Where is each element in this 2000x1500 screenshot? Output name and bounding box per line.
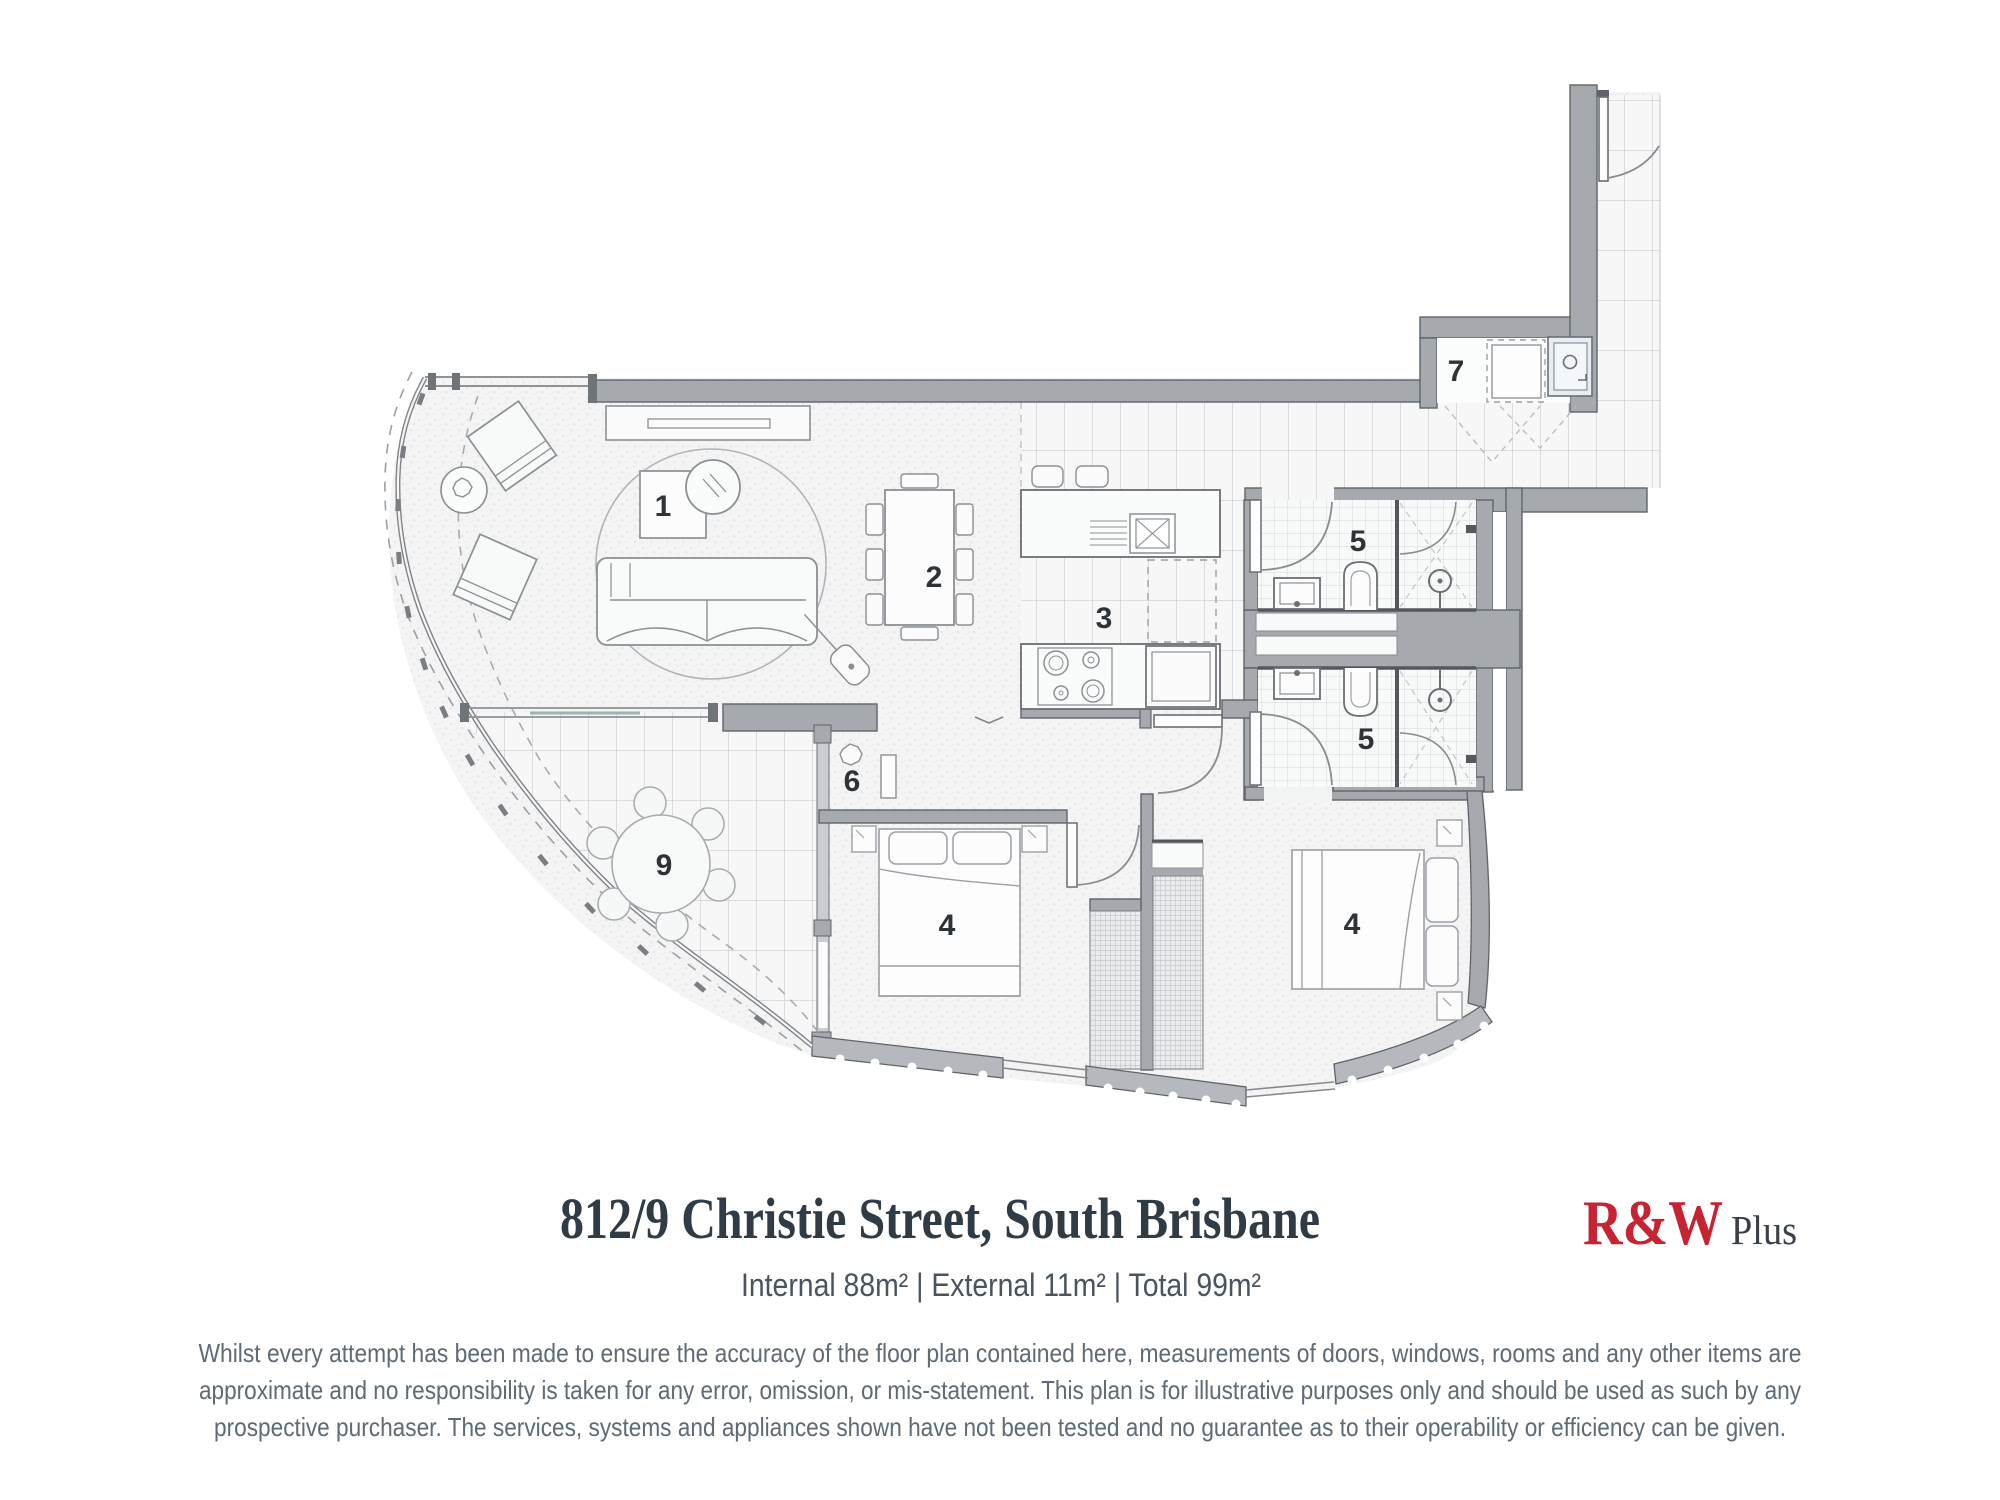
svg-text:5: 5	[1350, 525, 1367, 558]
svg-text:3: 3	[1096, 602, 1113, 635]
svg-text:9: 9	[656, 849, 673, 882]
svg-text:1: 1	[655, 490, 672, 523]
svg-text:4: 4	[939, 909, 956, 942]
svg-text:2: 2	[926, 561, 943, 594]
svg-text:5: 5	[1358, 723, 1375, 756]
svg-text:Whilst every attempt has been: Whilst every attempt has been made to en…	[199, 1338, 1802, 1368]
svg-text:approximate and no responsibil: approximate and no responsibility is tak…	[199, 1375, 1801, 1405]
svg-text:6: 6	[844, 765, 861, 798]
svg-text:R&W: R&W	[1583, 1188, 1723, 1258]
svg-text:Plus: Plus	[1731, 1207, 1797, 1253]
svg-text:4: 4	[1344, 908, 1361, 941]
svg-text:7: 7	[1448, 355, 1465, 388]
svg-text:prospective purchaser. The ser: prospective purchaser. The services, sys…	[214, 1412, 1786, 1442]
svg-text:Internal 88m² | External 11m²: Internal 88m² | External 11m² | Total 99…	[741, 1267, 1261, 1303]
svg-text:812/9 Christie Street, South B: 812/9 Christie Street, South Brisbane	[560, 1186, 1320, 1251]
